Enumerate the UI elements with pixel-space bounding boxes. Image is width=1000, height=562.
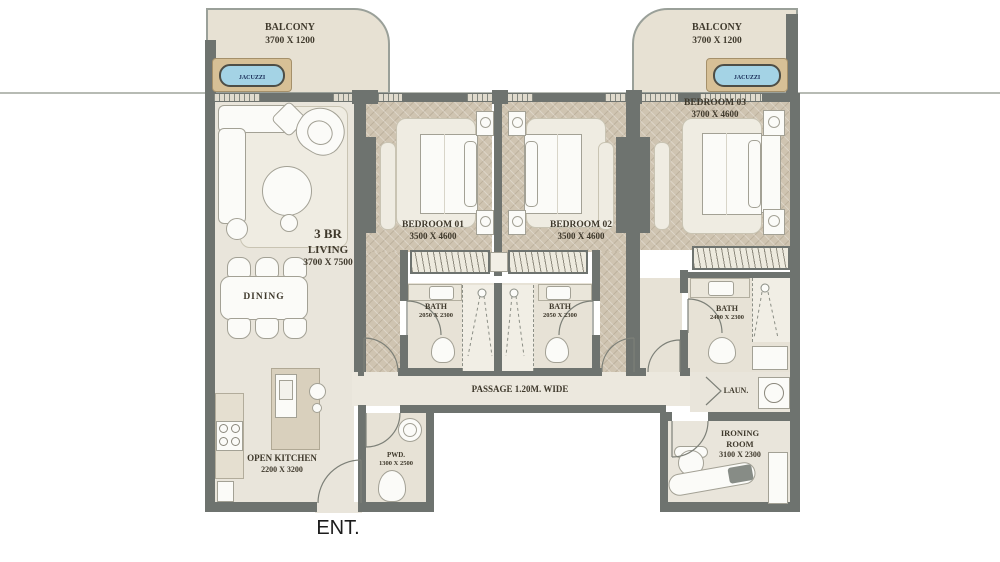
armchair-cushion xyxy=(303,116,338,150)
wall xyxy=(680,368,690,376)
bedroom-03-entry-floor xyxy=(640,278,682,374)
wall xyxy=(494,93,502,276)
wall xyxy=(205,93,215,512)
window xyxy=(214,94,260,101)
bedroom-01-entry-floor xyxy=(366,252,400,372)
washer-door-icon xyxy=(764,383,784,403)
kettle-icon xyxy=(309,383,326,400)
pillow-icon xyxy=(464,141,477,207)
shower-icon xyxy=(752,278,790,342)
wall xyxy=(398,368,602,376)
shower-icon xyxy=(502,285,534,371)
kettle-icon xyxy=(312,403,322,413)
base-cabinet xyxy=(217,481,234,502)
kitchen-label: OPEN KITCHEN 2200 X 3200 xyxy=(228,453,336,475)
wall xyxy=(400,335,408,372)
bedroom-03-label: BEDROOM 03 3700 X 4600 xyxy=(654,97,776,121)
shaft-box xyxy=(752,346,788,370)
lamp-icon xyxy=(512,117,523,128)
ironing-room-label: IRONING ROOM 3100 X 2300 xyxy=(702,428,778,460)
sink-basin-inner xyxy=(279,380,293,400)
sofa-icon xyxy=(218,128,246,224)
wall-pier xyxy=(352,90,378,104)
bedroom-01-label: BEDROOM 01 3500 X 4600 xyxy=(372,219,494,243)
iron-icon xyxy=(727,464,753,484)
burner-icon xyxy=(219,437,228,446)
bed-fold-line xyxy=(557,134,558,214)
dining-chair-icon xyxy=(227,257,251,278)
bed-fold-line xyxy=(726,133,727,215)
entrance-threshold xyxy=(315,502,362,513)
balcony-left-label: BALCONY 3700 X 1200 xyxy=(225,22,355,47)
dining-chair-icon xyxy=(255,318,279,339)
pillow-icon xyxy=(748,140,761,208)
dining-chair-icon xyxy=(227,318,251,339)
wall xyxy=(592,335,600,372)
toilet-icon xyxy=(708,337,736,364)
wall xyxy=(660,412,668,512)
wall xyxy=(400,250,408,301)
pwd-label: PWD. 1300 X 2500 xyxy=(368,451,424,468)
bench-icon xyxy=(598,142,614,230)
wall xyxy=(358,368,364,376)
dining-chair-icon xyxy=(283,318,307,339)
wall xyxy=(205,502,317,512)
lamp-icon xyxy=(480,117,491,128)
wall xyxy=(626,368,646,376)
bench-icon xyxy=(654,142,670,230)
toilet-icon xyxy=(545,337,569,363)
bath-02-label: BATH 2050 X 2300 xyxy=(533,302,587,321)
pillow-icon xyxy=(525,141,538,207)
wall xyxy=(494,283,502,372)
wall-pier xyxy=(626,90,642,104)
laundry-label: LAUN. xyxy=(712,386,760,396)
sink-icon xyxy=(429,286,454,300)
wardrobe-icon xyxy=(508,250,588,274)
jacuzzi-left-tub: JACUZZI xyxy=(219,64,285,87)
wall xyxy=(680,270,688,293)
side-table-icon xyxy=(226,218,248,240)
sink-icon xyxy=(546,286,571,300)
burner-icon xyxy=(219,424,228,433)
bed-fold-line xyxy=(444,134,445,214)
wardrobe-icon xyxy=(692,246,790,270)
lamp-icon xyxy=(768,215,780,227)
wall xyxy=(660,412,672,421)
wall xyxy=(426,405,434,512)
jacuzzi-left-label: JACUZZI xyxy=(239,75,265,81)
burner-icon xyxy=(231,424,240,433)
balcony-right-label: BALCONY 3700 X 1200 xyxy=(652,22,782,47)
wall xyxy=(426,405,666,413)
wall xyxy=(358,405,366,512)
wall xyxy=(592,250,600,301)
burner-icon xyxy=(231,437,240,446)
door-swing-overlay xyxy=(0,0,1000,562)
jacuzzi-right-label: JACUZZI xyxy=(734,75,760,81)
bedroom-02-entry-floor xyxy=(600,252,626,372)
jacuzzi-right-tub: JACUZZI xyxy=(713,64,781,87)
bench-icon xyxy=(380,142,396,230)
coffee-table-icon xyxy=(262,166,312,216)
entrance-label: ENT. xyxy=(302,516,374,542)
sink-basin-inner xyxy=(403,423,417,437)
wardrobe-center-panel xyxy=(490,252,508,272)
dining-label: DINING xyxy=(220,291,308,303)
bedroom-02-label: BEDROOM 02 3500 X 4600 xyxy=(520,219,642,243)
wall xyxy=(358,502,434,512)
shower-icon xyxy=(462,285,494,371)
toilet-icon xyxy=(431,337,455,363)
bath-01-label: BATH 2050 X 2300 xyxy=(409,302,463,321)
wall-pier xyxy=(492,90,508,104)
wardrobe-icon xyxy=(410,250,490,274)
wall xyxy=(790,93,800,512)
passage-label: PASSAGE 1.20M. WIDE xyxy=(430,384,610,396)
sink-icon xyxy=(275,374,297,418)
toilet-icon xyxy=(378,470,406,502)
sink-icon xyxy=(708,281,734,296)
wall xyxy=(708,412,790,421)
headboard-icon xyxy=(761,135,781,213)
bath-03-label: BATH 2400 X 2300 xyxy=(700,304,754,323)
living-label: 3 BR LIVING 3700 X 7500 xyxy=(268,226,388,269)
floor-plan: BALCONY 3700 X 1200 JACUZZI BALCONY 3700… xyxy=(0,0,1000,562)
